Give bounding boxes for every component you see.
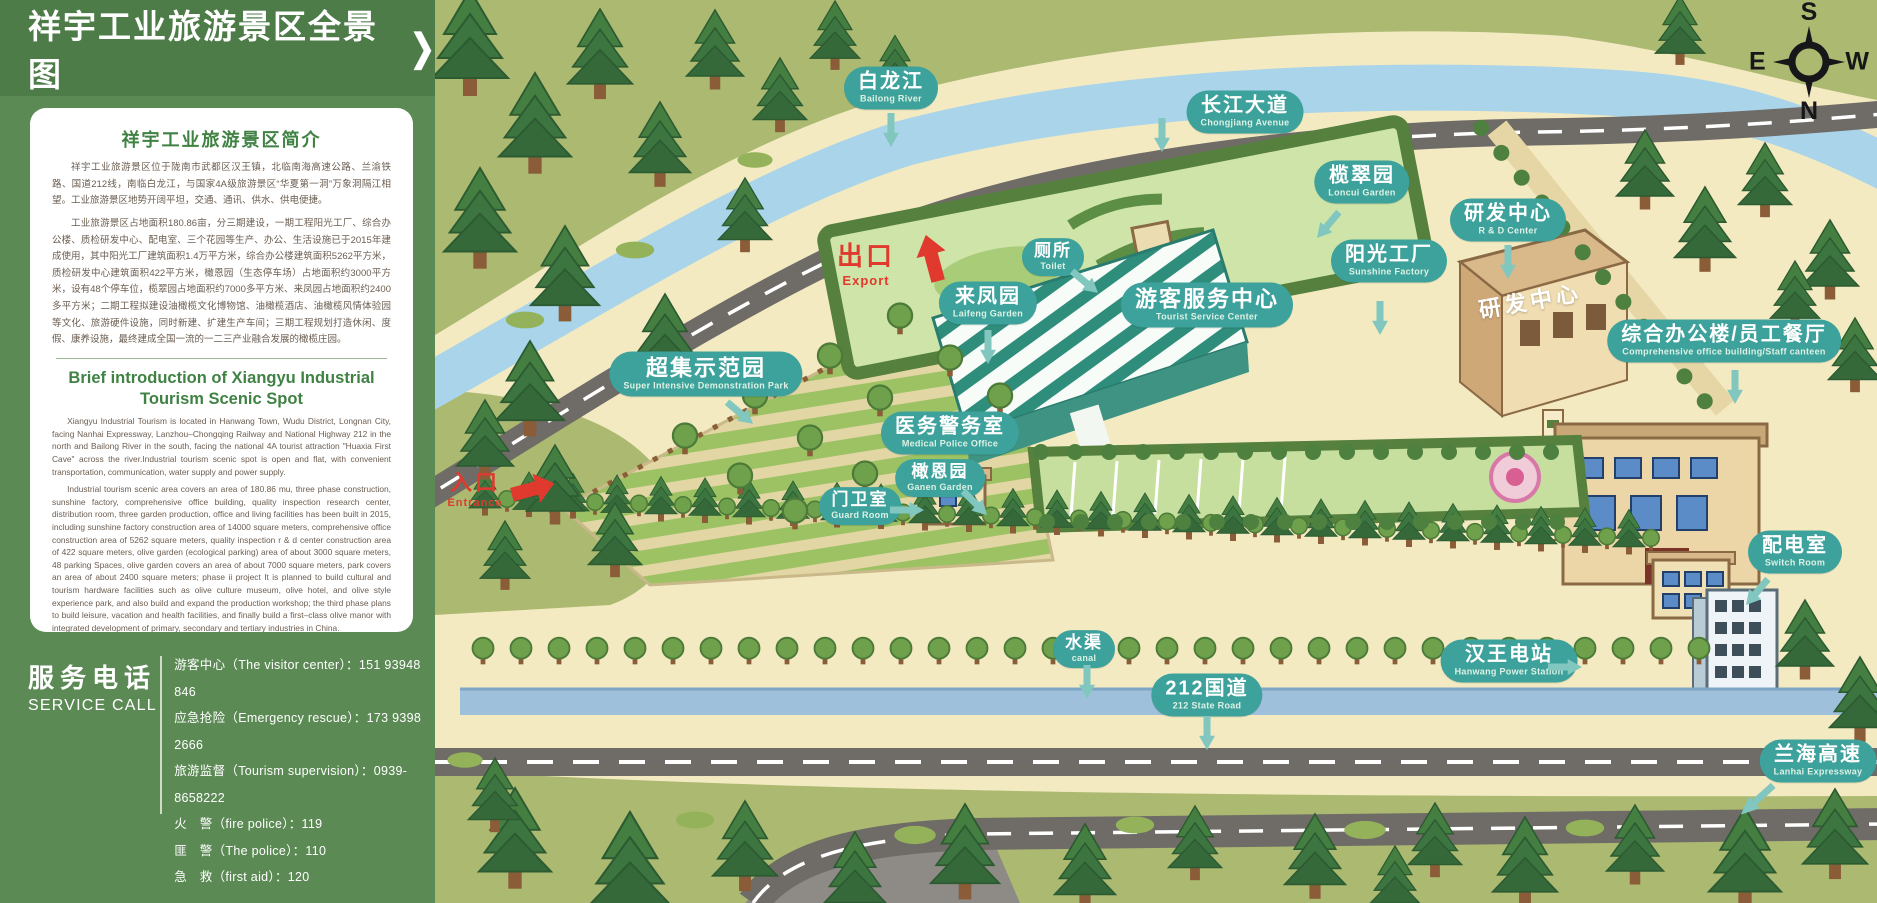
map-label-canal: 水渠 canal (1053, 630, 1115, 668)
label-zh: 研发中心 (1464, 204, 1552, 225)
grass-mound-icon (737, 152, 772, 167)
label-zh: 橄恩园 (907, 463, 973, 481)
label-en: Comprehensive office building/Staff cant… (1621, 347, 1827, 357)
intro-paragraph-en: Industrial tourism scenic area covers an… (52, 483, 391, 632)
title-chevron-icon: ❯ (410, 26, 435, 70)
hedge-shrub-icon (1175, 514, 1191, 530)
label-zh: 配电室 (1762, 536, 1828, 557)
map-label-office-building: 综合办公楼/员工餐厅 Comprehensive office building… (1607, 320, 1841, 363)
label-en: Switch Room (1762, 558, 1828, 568)
hedge-shrub-icon (1209, 514, 1225, 530)
hedge-shrub-icon (1039, 514, 1055, 530)
compass-west: W (1845, 48, 1869, 77)
label-zh: 门卫室 (831, 491, 889, 509)
map-label-laifeng-garden: 来凤园 Laifeng Garden (939, 282, 1037, 325)
title-bar: 祥宇工业旅游景区全景图 ❯ (0, 0, 435, 96)
hedge-shrub-icon (1515, 514, 1531, 530)
hedge-shrub-icon (1615, 294, 1631, 310)
map-label-loncui-garden: 榄翠园 Loncui Garden (1314, 161, 1409, 204)
exit-label-en: Export (837, 273, 895, 288)
hedge-shrub-icon (1413, 514, 1429, 530)
hedge-shrub-icon (1475, 444, 1491, 460)
panorama-map: 白龙江 Bailong River 长江大道 Chongjiang Avenue… (435, 0, 1877, 903)
label-en: Bailong River (858, 94, 924, 104)
hedge-shrub-icon (1441, 444, 1457, 460)
label-en: Toilet (1034, 261, 1072, 271)
service-call-title-zh: 服务电话 (28, 658, 160, 695)
map-label-sunshine-factory: 阳光工厂 Sunshine Factory (1331, 240, 1447, 283)
compass-star-icon (1769, 22, 1849, 102)
grass-mound-icon (894, 826, 936, 844)
hedge-shrub-icon (1407, 444, 1423, 460)
map-label-tourist-service-center: 游客服务中心 Tourist Service Center (1121, 282, 1293, 327)
label-en: Hanwang Power Station (1455, 667, 1564, 677)
label-en: R & D Center (1464, 226, 1552, 236)
intro-paragraph-zh: 祥宇工业旅游景区位于陇南市武都区汉王镇，北临南海高速公路、兰渝铁路、国道212线… (52, 160, 391, 210)
label-zh: 医务警务室 (895, 417, 1005, 438)
hedge-shrub-icon (1373, 444, 1389, 460)
phone-entry: 应急抢险（Emergency rescue）：173 9398 2666 (174, 705, 435, 758)
map-label-rd-center: 研发中心 R & D Center (1450, 199, 1566, 242)
label-zh: 阳光工厂 (1345, 245, 1433, 266)
hedge-shrub-icon (1169, 444, 1185, 460)
intro-heading-zh: 祥宇工业旅游景区简介 (52, 126, 391, 152)
label-en: Guard Room (831, 510, 889, 520)
service-call-title-en: SERVICE CALL (28, 697, 160, 715)
exit-label-zh: 出口 (837, 236, 895, 273)
map-label-lanhai-expressway: 兰海高速 Lanhai Expressway (1760, 740, 1877, 783)
entrance-label-en: Entrance (447, 497, 502, 509)
label-en: 212 State Road (1165, 701, 1248, 711)
label-zh: 来凤园 (953, 287, 1023, 308)
hedge-shrub-icon (1493, 145, 1509, 161)
compass-south: S (1801, 0, 1818, 27)
hedge-shrub-icon (1107, 514, 1123, 530)
service-call-title: 服务电话 SERVICE CALL (0, 652, 160, 891)
label-en: Super Intensive Demonstration Park (623, 381, 788, 391)
hedge-shrub-icon (1073, 514, 1089, 530)
hedge-shrub-icon (1203, 444, 1219, 460)
grass-mound-icon (1344, 821, 1386, 839)
hedge-shrub-icon (1447, 514, 1463, 530)
hedge-shrub-icon (1595, 269, 1611, 285)
compass-east: E (1749, 48, 1766, 77)
grass-mound-icon (1566, 820, 1604, 837)
hedge-shrub-icon (1277, 514, 1293, 530)
label-en: Ganen Garden (907, 482, 973, 492)
info-panel: 祥宇工业旅游景区全景图 ❯ 祥宇工业旅游景区简介 祥宇工业旅游景区位于陇南市武都… (0, 0, 435, 903)
label-zh: 白龙江 (858, 72, 924, 93)
hedge-shrub-icon (1473, 120, 1489, 136)
grass-mound-icon (676, 812, 714, 829)
hedge-shrub-icon (1575, 244, 1591, 260)
entrance-marker: 入口 Entrance (447, 465, 502, 509)
label-zh: 综合办公楼/员工餐厅 (1621, 325, 1827, 346)
intro-paragraph-zh: 工业旅游景区占地面积180.86亩，分三期建设，一期工程阳光工厂、综合办公楼、质… (52, 216, 391, 349)
phone-entry: 匪 警（The police）：110 (174, 838, 435, 865)
hedge-shrub-icon (1135, 444, 1151, 460)
state-road-212 (435, 748, 1877, 776)
hedge-shrub-icon (1549, 514, 1565, 530)
intro-paragraph-en: Xiangyu Industrial Tourism is located in… (52, 415, 391, 478)
hedge-shrub-icon (1101, 444, 1117, 460)
hedge-shrub-icon (1339, 444, 1355, 460)
label-zh: 长江大道 (1201, 96, 1290, 117)
label-en: Sunshine Factory (1345, 267, 1433, 277)
phone-entry: 急 救（first aid）：120 (174, 864, 435, 891)
grass-mound-icon (447, 752, 482, 767)
hedge-shrub-icon (1697, 393, 1713, 409)
label-en: canal (1065, 653, 1103, 663)
page-title: 祥宇工业旅游景区全景图 (28, 0, 398, 96)
hedge-shrub-icon (1033, 444, 1049, 460)
intro-heading-en: Brief introduction of Xiangyu Industrial… (52, 368, 391, 409)
service-phone-list: 游客中心（The visitor center）：151 93948 846 应… (174, 652, 435, 891)
label-zh: 厕所 (1034, 242, 1072, 260)
label-en: Medical Police Office (895, 439, 1005, 449)
map-label-ganen-garden: 橄恩园 Ganen Garden (895, 459, 985, 497)
grass-mound-icon (1116, 817, 1154, 834)
label-zh: 水渠 (1065, 634, 1103, 652)
map-label-hanwang-power-station: 汉王电站 Hanwang Power Station (1441, 640, 1578, 683)
label-en: Loncui Garden (1328, 188, 1395, 198)
label-en: Chongjiang Avenue (1201, 118, 1290, 128)
hedge-shrub-icon (1243, 514, 1259, 530)
hedge-shrub-icon (1067, 444, 1083, 460)
map-label-switch-room: 配电室 Switch Room (1748, 531, 1842, 574)
label-zh: 游客服务中心 (1135, 287, 1279, 310)
hedge-shrub-icon (1481, 514, 1497, 530)
hedge-shrub-icon (1305, 444, 1321, 460)
hedge-shrub-icon (1271, 444, 1287, 460)
hedge-shrub-icon (1237, 444, 1253, 460)
introduction-card: 祥宇工业旅游景区简介 祥宇工业旅游景区位于陇南市武都区汉王镇，北临南海高速公路、… (30, 108, 413, 632)
grass-mound-icon (616, 242, 654, 259)
phone-entry: 游客中心（The visitor center）：151 93948 846 (174, 652, 435, 705)
service-call-section: 服务电话 SERVICE CALL 游客中心（The visitor cente… (0, 652, 435, 891)
map-label-medical-police-office: 医务警务室 Medical Police Office (881, 412, 1019, 455)
compass-north: N (1800, 97, 1818, 126)
divider (56, 358, 387, 359)
hedge-shrub-icon (1311, 514, 1327, 530)
entrance-label-zh: 入口 (447, 465, 502, 497)
hedge-shrub-icon (1676, 368, 1692, 384)
hedge-shrub-icon (1514, 170, 1530, 186)
map-scenery (435, 0, 1877, 903)
compass: S E W N (1747, 0, 1871, 124)
hedge-shrub-icon (1543, 444, 1559, 460)
map-label-bailong-river: 白龙江 Bailong River (844, 67, 938, 110)
hedge-shrub-icon (1345, 514, 1361, 530)
label-en: Laifeng Garden (953, 309, 1023, 319)
label-en: Tourist Service Center (1135, 312, 1279, 322)
label-zh: 榄翠园 (1328, 166, 1395, 187)
hedge-shrub-icon (1509, 444, 1525, 460)
phone-entry: 旅游监督（Tourism supervision）：0939-8658222 (174, 758, 435, 811)
map-label-changjiang-avenue: 长江大道 Chongjiang Avenue (1187, 91, 1304, 134)
map-label-212-state-road: 212国道 212 State Road (1151, 674, 1262, 717)
hedge-shrub-icon (1141, 514, 1157, 530)
vertical-divider (160, 656, 162, 814)
map-label-guard-room: 门卫室 Guard Room (819, 487, 901, 525)
map-label-super-demonstration-park: 超集示范园 Super Intensive Demonstration Park (609, 351, 802, 396)
grass-mound-icon (506, 312, 544, 329)
phone-entry: 火 警（fire police）：119 (174, 811, 435, 838)
exit-marker: 出口 Export (837, 236, 895, 288)
label-zh: 超集示范园 (623, 356, 788, 379)
label-en: Lanhai Expressway (1774, 767, 1863, 777)
label-zh: 汉王电站 (1455, 645, 1564, 666)
label-zh: 兰海高速 (1774, 745, 1863, 766)
hedge-shrub-icon (1379, 514, 1395, 530)
label-zh: 212国道 (1165, 679, 1248, 700)
